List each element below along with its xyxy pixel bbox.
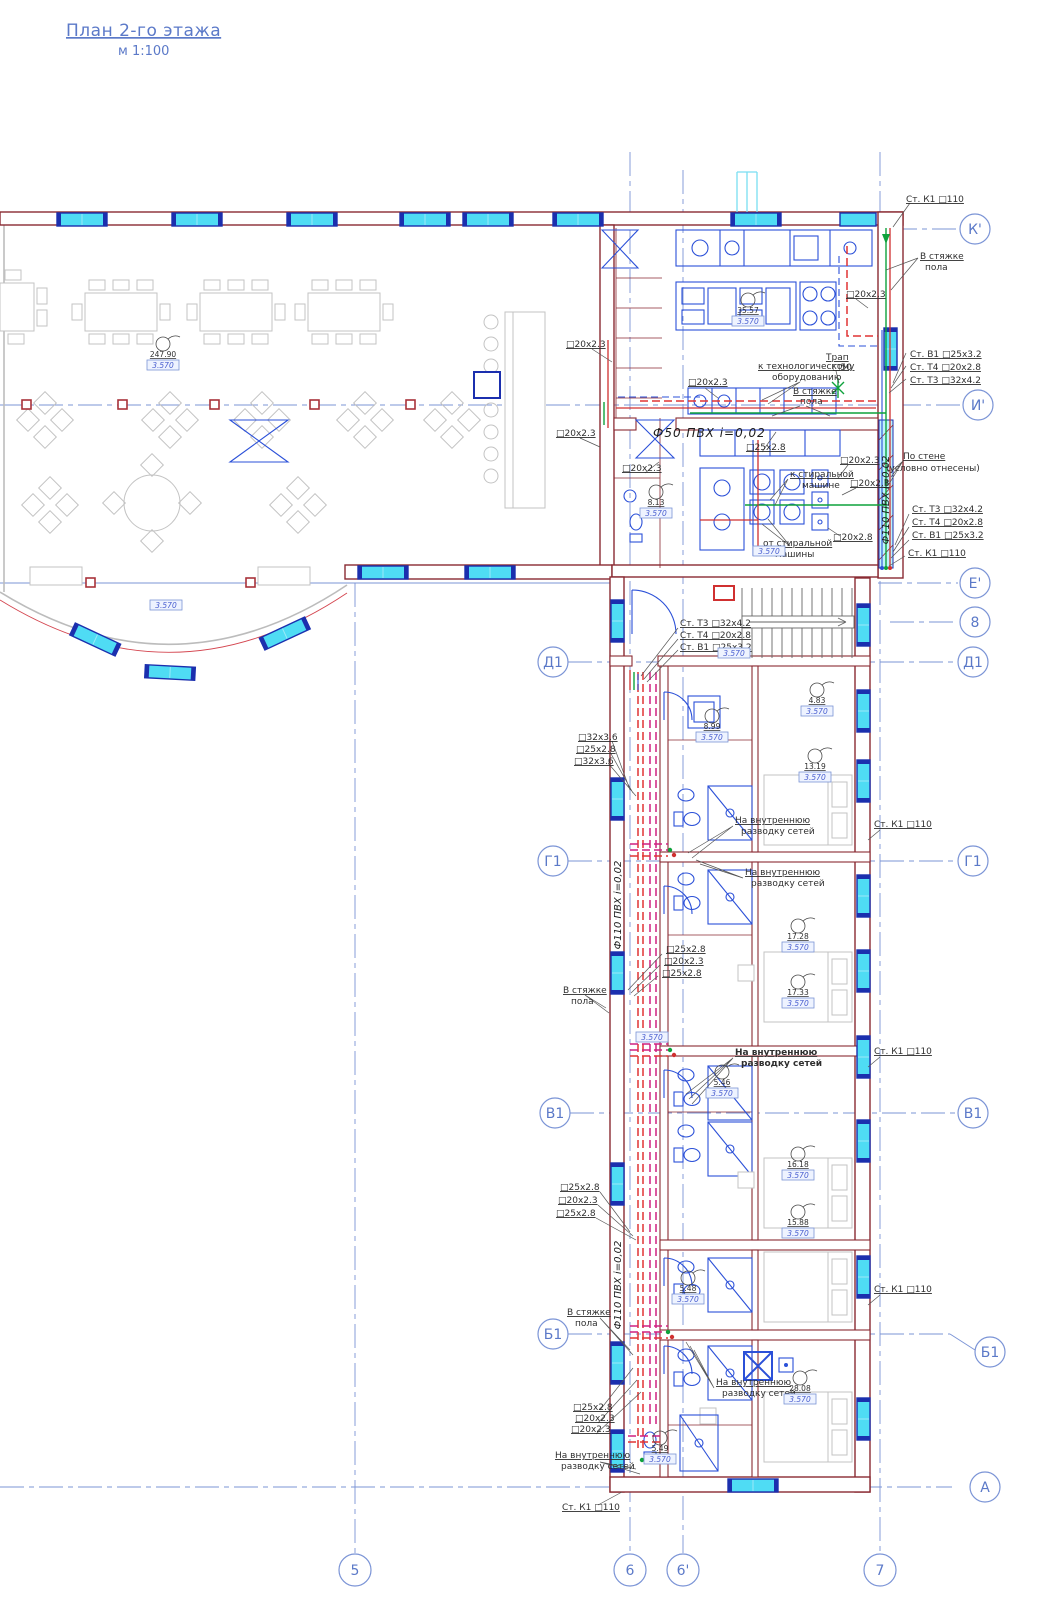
window [611,778,624,820]
corridor-pipes-hot [638,672,643,1452]
window [857,875,870,917]
riser-label: Ст. Т4 □20x2.8 [912,518,983,528]
axis-bubble-7: 7 [864,1554,896,1586]
room-tag: 17.283.570 [782,918,815,952]
pipe-size: □32x3.6 [578,733,618,743]
svg-text:16.18: 16.18 [787,1160,809,1169]
svg-text:В1: В1 [964,1106,983,1122]
window [857,1036,870,1078]
svg-text:3.570: 3.570 [155,601,177,610]
axis-bubble-ip: И' [963,390,993,420]
pipe-size: □25x2.8 [576,745,616,755]
pipe-size: □25x2.8 [666,945,706,955]
pipe-size: □25x2.8 [746,443,786,453]
window [611,600,624,642]
svg-text:35.57: 35.57 [737,306,759,315]
axis-bubble-g1-left: Г1 [538,846,568,876]
svg-text:Б1: Б1 [981,1345,1000,1361]
pipe-size: □25x2.8 [560,1183,600,1193]
room-tag: 5.483.570 [672,1270,705,1304]
window [57,213,107,226]
axis-bubble-ep: Е' [960,568,990,598]
riser-label: Ст. В1 □25x3.2 [912,531,984,541]
pipe-size: □20x2.3 [688,378,728,388]
pipe-size: □20x2.3 [558,1196,598,1206]
elevator [744,1352,793,1380]
window [358,566,408,579]
shaft-box [714,586,734,600]
pipe-size: □20x2.3 [556,429,596,439]
svg-text:3.570: 3.570 [723,649,745,658]
svg-text:3.570: 3.570 [787,999,809,1008]
buffet-counter [505,312,545,508]
pipe-size: □20x2.3 [664,957,704,967]
axis-bubble-d1-left: Д1 [538,647,568,677]
window [465,566,515,579]
svg-text:8: 8 [971,615,980,631]
window [857,1398,870,1440]
svg-text:6': 6' [677,1563,690,1579]
pipe-size: □20x2.3 [566,340,606,350]
note: к технологическому [758,362,855,372]
note: В стяжке [920,252,964,262]
window [857,1120,870,1162]
svg-text:17.28: 17.28 [787,932,809,941]
vent-lines [737,172,757,212]
riser-label: Ст. Т3 □32x4.2 [910,376,981,386]
riser-label: Ст. Т4 □20x2.8 [680,631,751,641]
pipe-size: □25x2.8 [556,1209,596,1219]
svg-text:3.570: 3.570 [789,1395,811,1404]
svg-text:3.570: 3.570 [737,317,759,326]
pipe-size: □20x2.3 [571,1425,611,1435]
floor-plan-drawing: План 2-го этажа м 1:100 К' И' Е' 8 Д1 Д1… [0,0,1051,1600]
floor-plan-sheet: План 2-го этажа м 1:100 К' И' Е' 8 Д1 Д1… [0,0,1051,1600]
pipe-size: □20x2.3 [846,290,886,300]
window [400,213,450,226]
note: На внутреннюю [735,1048,817,1058]
window-curved [145,665,196,681]
svg-text:3.570: 3.570 [701,733,723,742]
axis-bubble-6: 6 [614,1554,646,1586]
svg-text:Г1: Г1 [964,854,981,870]
window [857,760,870,802]
room-tag: 28.083.570 [784,1370,817,1404]
note: По стене [903,452,946,462]
plan-title: План 2-го этажа [66,21,221,41]
window [728,1479,778,1492]
svg-text:17.33: 17.33 [787,988,809,997]
note: разводку сетей [741,827,815,837]
elevation-mark: 3.570 [753,546,785,556]
svg-text:В1: В1 [546,1106,565,1122]
window [857,690,870,732]
window [857,604,870,646]
pipe-main-label: Ф110 ПВХ i=0,02 [881,456,892,545]
pipe-size: □20x2.3 [622,464,662,474]
pipe-size: □25x2.8 [662,969,702,979]
double-door [230,420,288,462]
note: пола [571,997,594,1007]
svg-text:3.570: 3.570 [152,361,174,370]
room-tag: 13.193.570 [799,748,832,782]
svg-text:3.570: 3.570 [787,1171,809,1180]
axis-bubble-v1-left: В1 [540,1098,570,1128]
plan-scale: м 1:100 [118,44,169,59]
door-arc [632,590,676,634]
note: На внутреннюю [745,868,820,878]
svg-text:8.13: 8.13 [648,498,665,507]
svg-text:3.570: 3.570 [677,1295,699,1304]
window [857,1256,870,1298]
pipe-main-label: Ф110 ПВХ i=0,02 [613,1241,624,1330]
riser-label: Ст. Т4 □20x2.8 [910,363,981,373]
elevation-mark: 3.570 [718,648,750,658]
axis-bubble-v1-right: В1 [958,1098,988,1128]
pipe-size: □20x2.8 [833,533,873,543]
riser-label: Ст. В1 □25x3.2 [910,350,982,360]
window [553,213,603,226]
svg-text:8.99: 8.99 [704,722,721,731]
axis-bubble-6p: 6' [667,1554,699,1586]
svg-text:7: 7 [876,1563,885,1579]
restaurant-furniture [0,270,545,587]
svg-text:Б1: Б1 [544,1327,563,1343]
svg-text:6: 6 [626,1563,635,1579]
window [611,1342,624,1384]
riser-label: Ст. К1 □110 [908,549,966,559]
riser-label: Ст. К1 □110 [874,820,932,830]
bathroom [674,1122,752,1176]
riser-label: Ст. К1 □110 [906,195,964,205]
pipe-size: □20x2.3 [840,456,880,466]
note: На внутреннюю [555,1451,630,1461]
note: На внутреннюю [735,816,810,826]
room-tag: 8.993.570 [696,708,729,742]
axis-bubble-kp: К' [960,214,990,244]
drawing-title: План 2-го этажа м 1:100 [66,21,221,59]
window [611,952,624,994]
svg-text:15.88: 15.88 [787,1218,809,1227]
svg-text:А: А [980,1480,990,1496]
svg-text:К': К' [968,222,982,238]
note: оборудованию [772,373,842,383]
window [840,213,876,226]
riser-label: Ст. Т3 □32x4.2 [912,505,983,515]
elevation-mark: 3.570 [636,1032,668,1042]
pipe-size: □25x2.8 [573,1403,613,1413]
note: к стиральной [790,470,854,480]
svg-text:Д1: Д1 [963,655,983,671]
riser-label: Ст. К1 □110 [874,1285,932,1295]
axis-bubble-b1-right: Б1 [975,1337,1005,1367]
svg-text:4.83: 4.83 [809,696,826,705]
note: На внутреннюю [716,1378,791,1388]
hotel-units [644,692,852,1471]
window [172,213,222,226]
riser-label: Ст. К1 □110 [562,1503,620,1513]
svg-text:247.90: 247.90 [150,350,176,359]
riser-label: Ст. К1 □110 [874,1047,932,1057]
window [611,1163,624,1205]
bed [764,1252,852,1322]
column [474,372,500,398]
note: пола [800,397,823,407]
axis-bubble-5: 5 [339,1554,371,1586]
note: (условно отнесены) [886,464,980,474]
window [857,950,870,992]
window [287,213,337,226]
elevation-mark: 3.570 [150,600,182,610]
svg-text:Д1: Д1 [543,655,563,671]
room-tag: 4.833.570 [801,682,834,716]
svg-text:Е': Е' [969,576,982,592]
svg-text:28.08: 28.08 [789,1384,811,1393]
svg-text:3.570: 3.570 [787,1229,809,1238]
pipe-size: □20x2.3 [575,1414,615,1424]
svg-text:5.48: 5.48 [680,1284,697,1293]
window-curved [259,617,310,650]
note: В стяжке [793,387,837,397]
axis-bubble-b1-left: Б1 [538,1319,568,1349]
axis-bubble-8: 8 [960,607,990,637]
room-tag: 8.133.570 [640,484,673,518]
svg-text:5: 5 [351,1563,360,1579]
svg-text:3.570: 3.570 [711,1089,733,1098]
note: В стяжке [567,1308,611,1318]
svg-text:3.570: 3.570 [641,1033,663,1042]
svg-text:Г1: Г1 [544,854,561,870]
bed [764,952,852,1022]
note: пола [925,263,948,273]
window [463,213,513,226]
window [731,213,781,226]
svg-text:5.46: 5.46 [714,1078,731,1087]
note: пола [575,1319,598,1329]
svg-text:3.570: 3.570 [758,547,780,556]
room-tag: 35.573.570 [732,292,765,326]
pipe-size: □32x3.6 [574,757,614,767]
axis-bubble-g1-right: Г1 [958,846,988,876]
riser-label: Ст. Т3 □32x4.2 [680,619,751,629]
note: разводку сетей [751,879,825,889]
pipe-main-label: Ф110 ПВХ i=0,02 [613,861,624,950]
svg-text:3.570: 3.570 [787,943,809,952]
note: В стяжке [563,986,607,996]
svg-text:13.19: 13.19 [804,762,826,771]
svg-text:3.570: 3.570 [649,1455,671,1464]
pipe-main-label: Ф50 ПВХ i=0,02 [653,426,766,440]
window-curved [70,623,121,656]
svg-text:3.570: 3.570 [645,509,667,518]
svg-text:5.49: 5.49 [652,1444,669,1453]
axis-bubble-d1-right: Д1 [958,647,988,677]
svg-text:И': И' [971,398,985,414]
note: разводку сетей [741,1059,822,1069]
axis-bubble-a: А [970,1472,1000,1502]
svg-text:3.570: 3.570 [804,773,826,782]
svg-text:3.570: 3.570 [806,707,828,716]
note: разводку сетей [561,1462,635,1472]
note: машине [802,481,840,491]
